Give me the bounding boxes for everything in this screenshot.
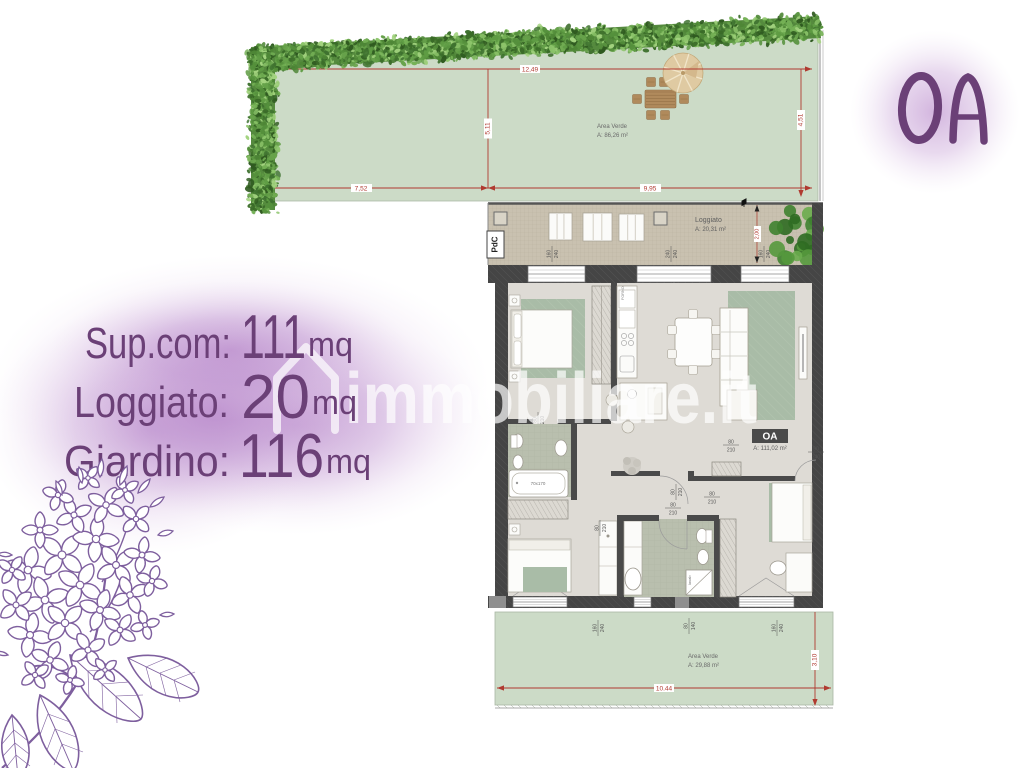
svg-text:80: 80 — [684, 623, 690, 629]
svg-text:12,49: 12,49 — [522, 67, 539, 74]
svg-text:116: 116 — [239, 422, 324, 491]
svg-text:Area Verde: Area Verde — [597, 124, 628, 130]
svg-text:80: 80 — [709, 492, 715, 498]
svg-text:9,95: 9,95 — [644, 185, 657, 192]
svg-text:Sup.com:: Sup.com: — [85, 319, 231, 368]
svg-text:111: 111 — [241, 303, 306, 372]
svg-text:Loggiato:: Loggiato: — [74, 378, 229, 427]
svg-text:3,10: 3,10 — [812, 653, 819, 666]
svg-text:2,00: 2,00 — [754, 229, 760, 240]
svg-text:7,52: 7,52 — [355, 185, 368, 192]
svg-text:90: 90 — [813, 447, 819, 453]
svg-text:10.44: 10.44 — [656, 686, 673, 693]
svg-text:240: 240 — [812, 455, 821, 461]
svg-text:210: 210 — [708, 500, 717, 506]
svg-text:80: 80 — [595, 525, 601, 531]
svg-text:240: 240 — [554, 250, 560, 259]
svg-text:FORNO: FORNO — [621, 286, 625, 300]
svg-text:240: 240 — [766, 250, 772, 259]
svg-text:80: 80 — [671, 489, 677, 495]
svg-text:240: 240 — [666, 250, 672, 259]
svg-text:A: 86,26 m²: A: 86,26 m² — [597, 133, 628, 139]
svg-text:PdC: PdC — [491, 236, 500, 252]
svg-text:240: 240 — [673, 250, 679, 259]
svg-text:80: 80 — [670, 503, 676, 509]
svg-text:A: 29,88 m²: A: 29,88 m² — [688, 663, 719, 669]
svg-text:mq: mq — [308, 326, 353, 364]
svg-text:A: 111,02 m²: A: 111,02 m² — [753, 446, 786, 452]
svg-text:210: 210 — [678, 488, 684, 497]
svg-text:210: 210 — [602, 524, 608, 533]
svg-text:160: 160 — [772, 624, 778, 633]
svg-text:immobiliare.it: immobiliare.it — [345, 359, 757, 439]
svg-text:70x170: 70x170 — [531, 481, 546, 486]
svg-text:lavab: lavab — [687, 575, 692, 585]
svg-text:210: 210 — [727, 448, 736, 454]
svg-text:210: 210 — [669, 511, 678, 517]
svg-text:80: 80 — [728, 440, 734, 446]
svg-text:mq: mq — [312, 384, 357, 422]
svg-text:140: 140 — [691, 622, 697, 631]
svg-text:160: 160 — [593, 624, 599, 633]
svg-text:Loggiato: Loggiato — [695, 217, 722, 224]
svg-text:160: 160 — [759, 250, 765, 259]
svg-text:mq: mq — [326, 443, 371, 481]
svg-text:A: 20,31 m²: A: 20,31 m² — [695, 227, 726, 233]
svg-text:160: 160 — [547, 250, 553, 259]
svg-text:240: 240 — [600, 624, 606, 633]
svg-text:OA: OA — [763, 432, 778, 443]
svg-text:5,11: 5,11 — [485, 122, 492, 135]
svg-text:4,51: 4,51 — [798, 113, 805, 126]
svg-text:240: 240 — [779, 624, 785, 633]
svg-text:Area Verde: Area Verde — [688, 654, 719, 660]
